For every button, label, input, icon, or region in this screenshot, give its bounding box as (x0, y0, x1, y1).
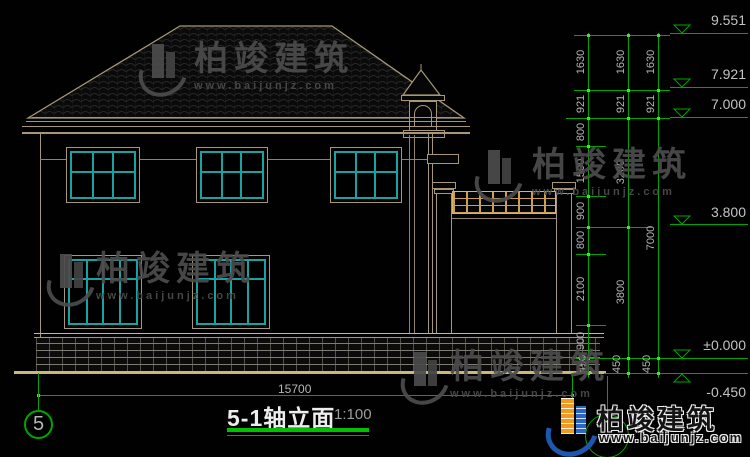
window-mullion (374, 153, 376, 197)
dim-tick (657, 34, 660, 37)
watermark-brand: 柏竣建筑 (450, 350, 610, 384)
logo-building-orange (561, 398, 574, 434)
dim-line (658, 33, 659, 378)
brand-building-icon (474, 148, 524, 198)
window-frame (334, 151, 398, 199)
dim-line (576, 325, 606, 326)
window-2f-left (66, 147, 140, 203)
dim-label: 921 (575, 95, 587, 113)
dim-label: 450 (611, 355, 623, 373)
dim-tick (587, 226, 590, 229)
title-underline-thin (227, 435, 369, 436)
window-mullion (221, 153, 223, 197)
drawing-scale: 1:100 (334, 406, 372, 423)
elev-triangle-icon (672, 374, 692, 383)
dim-tick (657, 117, 660, 120)
watermark-brand: 柏竣建筑 (194, 42, 354, 76)
dim-label: 921 (645, 95, 657, 113)
window-frame (70, 151, 136, 199)
watermark-url: www.baijunjz.com (96, 290, 256, 302)
pier-left-cap (432, 182, 456, 189)
dim-label: 3800 (615, 280, 627, 304)
dim-tick (587, 324, 590, 327)
pier-right-shaft (556, 194, 572, 333)
eave-line-2 (26, 121, 466, 122)
dim-line (628, 33, 629, 378)
dim-label: 921 (615, 95, 627, 113)
window-rail (72, 171, 134, 173)
elev-label: 3.800 (684, 204, 746, 220)
watermark: 柏竣建筑 www.baijunjz.com (474, 148, 692, 198)
watermark-url: www.baijunjz.com (532, 186, 692, 198)
window-mullion (355, 153, 357, 197)
dim-line (576, 254, 606, 255)
window-2f-middle (196, 147, 268, 203)
brand-logo-url: www.baijunjz.com (599, 430, 743, 445)
watermark: 柏竣建筑 www.baijunjz.com (138, 42, 354, 92)
title-underline-thick (227, 428, 369, 432)
window-rail (336, 171, 396, 173)
dim-tick (587, 89, 590, 92)
cupola-arch-window (414, 105, 432, 127)
brand-building-icon (400, 350, 450, 400)
dim-tick (627, 357, 630, 360)
dim-tick (657, 357, 660, 360)
dim-tick (627, 226, 630, 229)
eave-cornice-band (22, 126, 470, 134)
watermark: 柏竣建筑 www.baijunjz.com (46, 252, 256, 302)
dim-label: 1630 (575, 50, 587, 74)
elev-marker-line (670, 87, 748, 88)
brand-logo-icon (545, 398, 597, 452)
eave-line-1 (32, 117, 460, 118)
cad-elevation-canvas: 1630 921 800 1500 900 800 2100 900 450 1… (0, 0, 750, 457)
brand-building-icon (138, 42, 188, 92)
gate-wall-line (452, 218, 556, 219)
elev-label: 7.000 (684, 96, 746, 112)
window-rail (202, 171, 262, 173)
logo-building-blue (576, 406, 586, 434)
dim-tick (587, 117, 590, 120)
dim-tick (587, 34, 590, 37)
elev-label: 9.551 (684, 12, 746, 28)
dim-tick (627, 117, 630, 120)
window-frame (200, 151, 264, 199)
axis-line (38, 373, 39, 410)
dim-label: 7000 (645, 226, 657, 250)
window-mullion (240, 153, 242, 197)
window-mullion (92, 153, 94, 197)
watermark-url: www.baijunjz.com (194, 80, 354, 92)
watermark: 柏竣建筑 www.baijunjz.com (400, 350, 610, 400)
dim-line (566, 118, 670, 119)
dim-label: 900 (575, 202, 587, 220)
elev-label: 7.921 (684, 66, 746, 82)
elev-marker-line (670, 33, 748, 34)
dim-tick (627, 34, 630, 37)
eave-bracket (427, 154, 459, 164)
dim-tick (657, 372, 660, 375)
window-mullion (112, 153, 114, 197)
dim-label: 800 (575, 231, 587, 249)
dim-label: 1630 (615, 50, 627, 74)
watermark-brand: 柏竣建筑 (96, 252, 256, 286)
pier-left-shaft (436, 194, 452, 333)
downpipe-left (409, 135, 410, 333)
dim-tick (587, 253, 590, 256)
elev-marker-line (670, 224, 748, 225)
dim-tick (627, 372, 630, 375)
dim-tick (627, 89, 630, 92)
dim-label: 800 (575, 123, 587, 141)
elev-marker-line (670, 358, 748, 359)
window-2f-right (330, 147, 402, 203)
dim-tick (657, 89, 660, 92)
dim-label: 450 (641, 355, 653, 373)
hip-roof (0, 0, 750, 457)
dim-label-bottom: 15700 (278, 382, 311, 396)
dim-label: 2100 (575, 277, 587, 301)
dim-label: 1630 (645, 50, 657, 74)
elev-label: ±0.000 (684, 337, 746, 353)
watermark-brand: 柏竣建筑 (532, 148, 692, 182)
brand-building-icon (46, 252, 96, 302)
elev-marker-line (670, 117, 748, 118)
downpipe-right (414, 135, 415, 333)
axis-bubble-5: 5 (24, 410, 53, 439)
